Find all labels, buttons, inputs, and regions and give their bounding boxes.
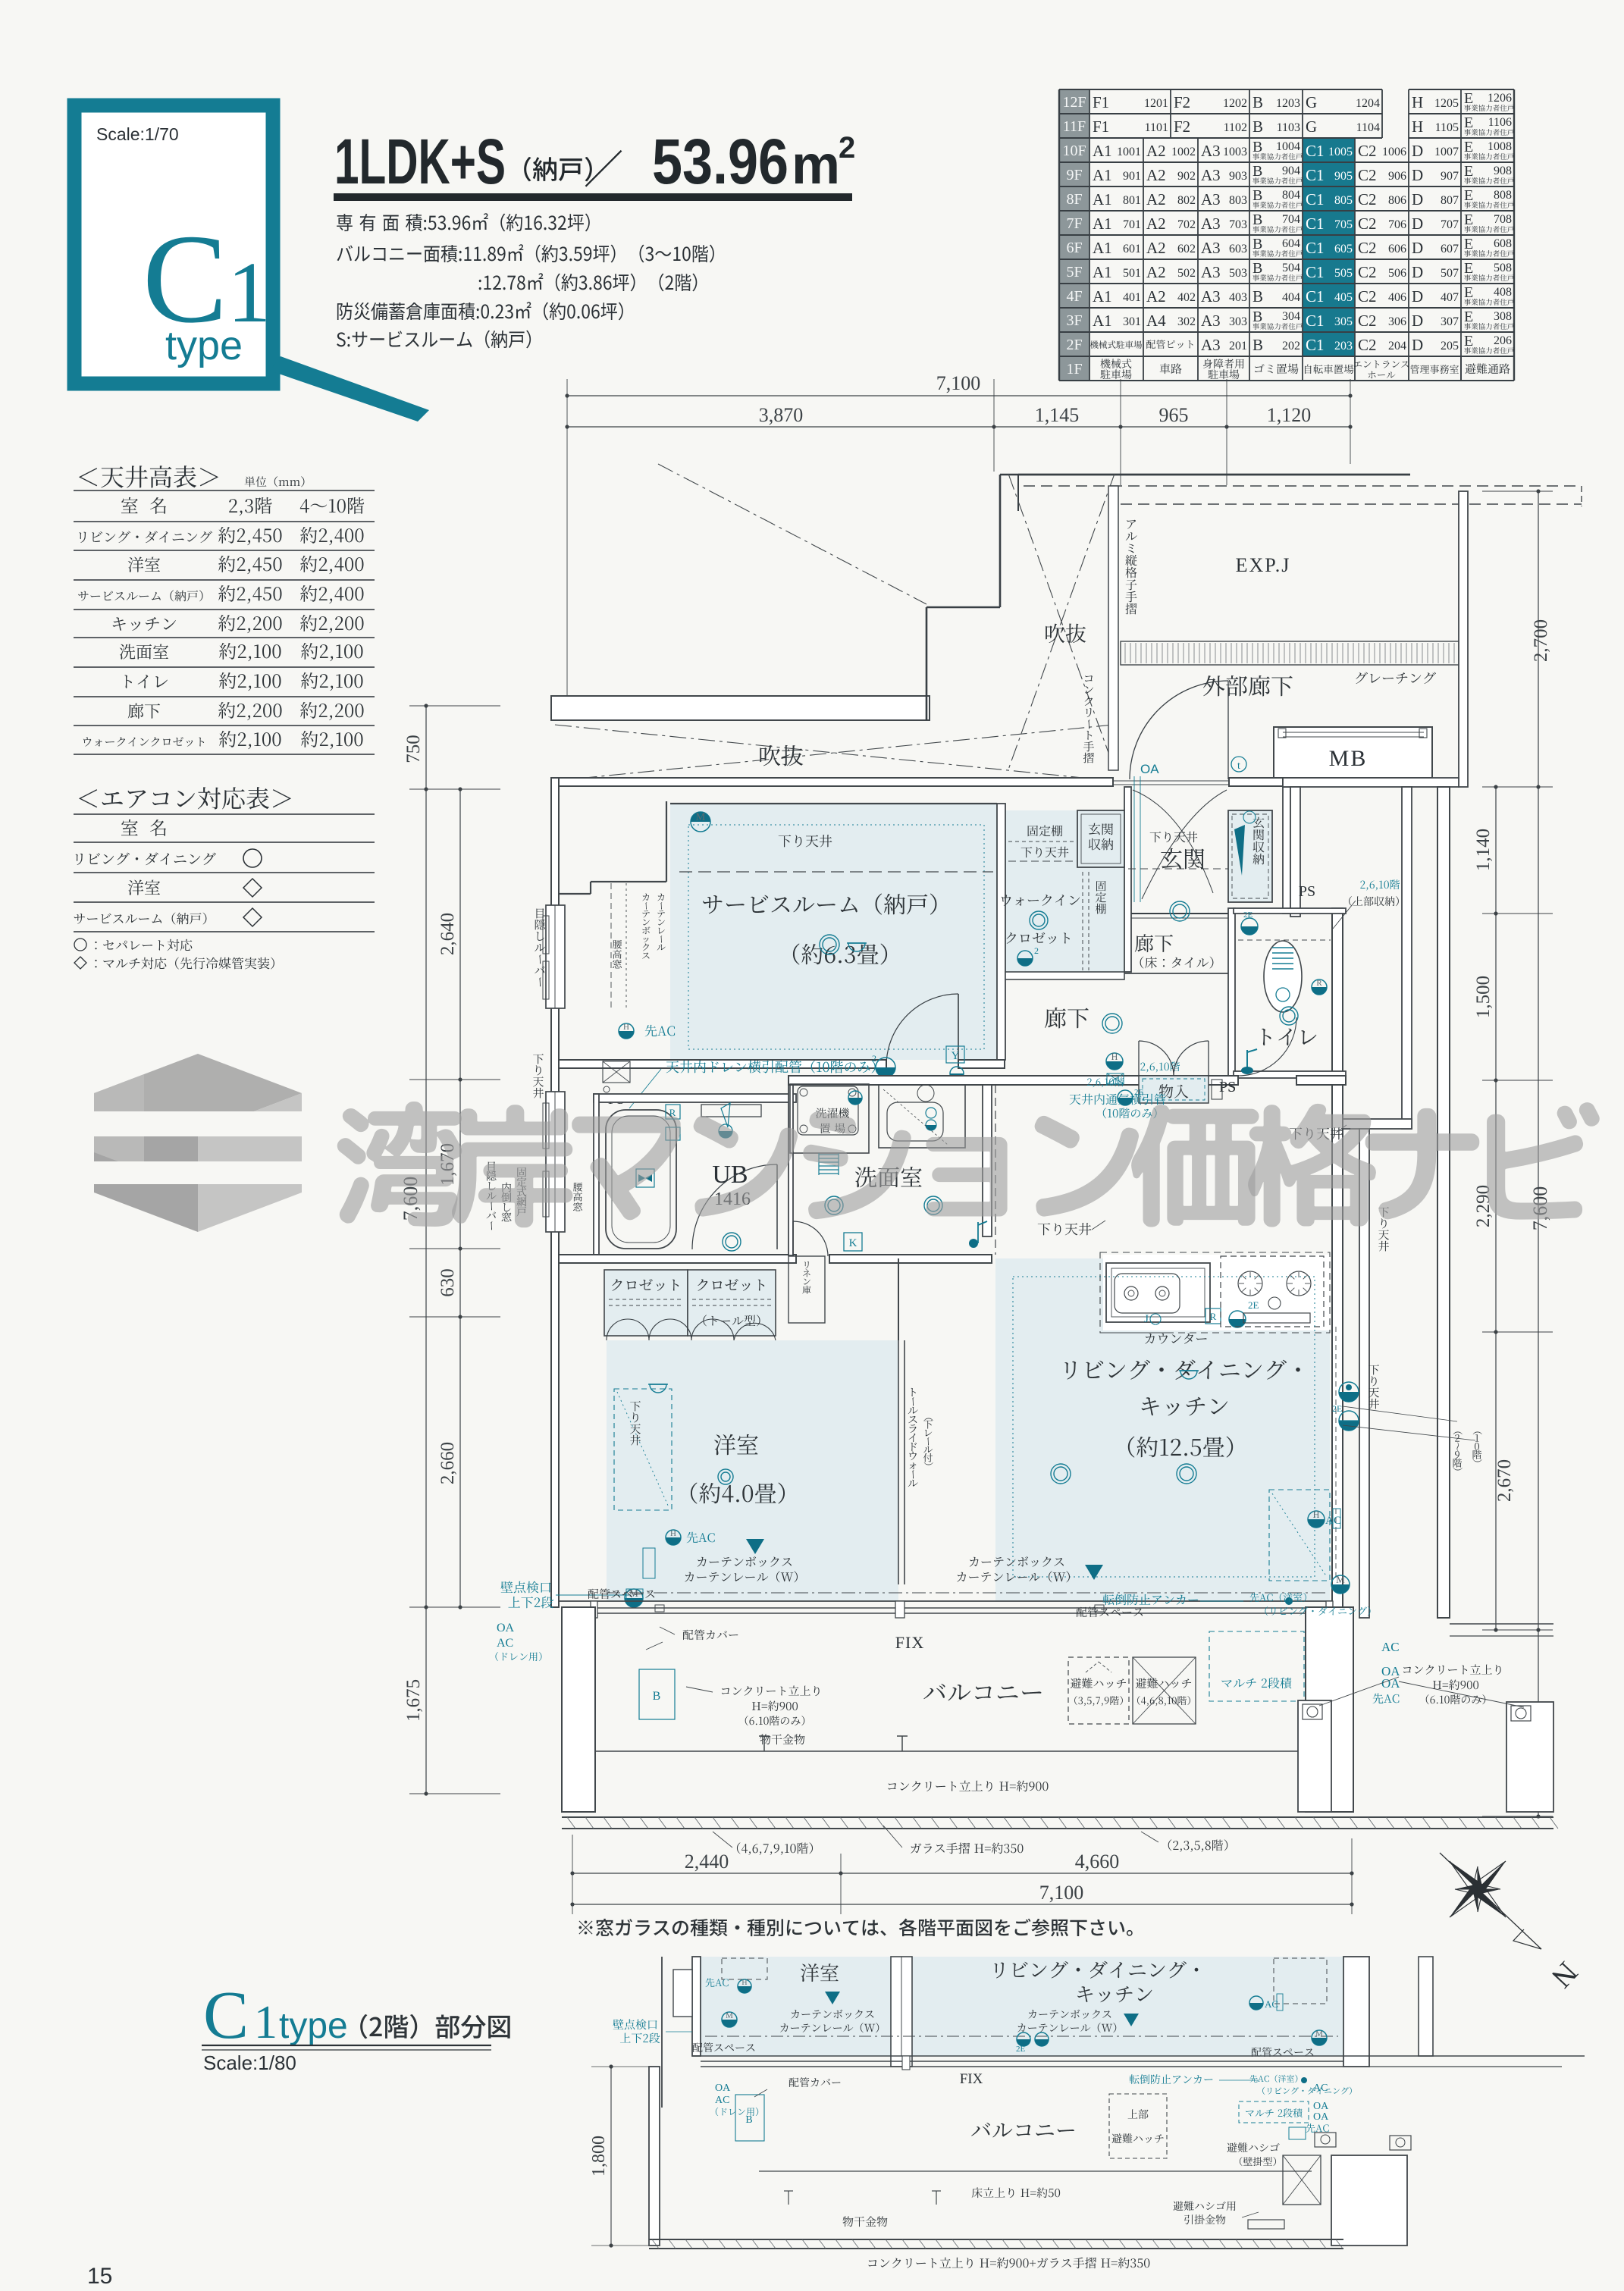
svg-text:H: H <box>1111 1051 1118 1062</box>
svg-text:Scale:1/80: Scale:1/80 <box>203 2051 296 2074</box>
svg-text:965: 965 <box>1159 404 1189 426</box>
svg-text:A1: A1 <box>1093 312 1112 330</box>
svg-text:C1: C1 <box>1306 336 1325 354</box>
svg-text:A1: A1 <box>1093 215 1112 233</box>
svg-text:7,100: 7,100 <box>1039 1882 1084 1904</box>
svg-text:2E: 2E <box>1243 910 1253 920</box>
svg-text:204: 204 <box>1388 340 1406 353</box>
svg-text:H: H <box>1412 118 1423 136</box>
svg-text:F1: F1 <box>1093 118 1109 136</box>
svg-text:2E: 2E <box>1016 2045 1026 2054</box>
svg-text:C1: C1 <box>1306 190 1325 208</box>
svg-text:801: 801 <box>1123 194 1141 207</box>
svg-text:202: 202 <box>1282 340 1300 353</box>
svg-text:2: 2 <box>872 1053 876 1064</box>
svg-text:902: 902 <box>1177 170 1196 183</box>
svg-text:604: 604 <box>1282 237 1300 250</box>
svg-text:PS: PS <box>1219 1079 1236 1095</box>
svg-text:C2: C2 <box>1358 263 1377 281</box>
svg-text:t: t <box>1237 760 1240 772</box>
svg-text:408: 408 <box>1494 286 1512 299</box>
svg-text:D: D <box>1412 287 1423 306</box>
svg-text:305: 305 <box>1334 315 1353 328</box>
svg-text:A1: A1 <box>1093 287 1112 306</box>
svg-text:1102: 1102 <box>1224 121 1247 134</box>
svg-text:7,100: 7,100 <box>936 372 981 394</box>
svg-text:J: J <box>1144 1313 1149 1325</box>
svg-text:C1: C1 <box>1306 312 1325 330</box>
svg-text:907: 907 <box>1441 170 1459 183</box>
svg-text:EXP.J: EXP.J <box>1236 554 1291 576</box>
svg-text:304: 304 <box>1282 310 1300 323</box>
svg-text:D: D <box>1412 336 1423 354</box>
svg-text:C2: C2 <box>1358 190 1377 208</box>
svg-text:4,660: 4,660 <box>1075 1851 1120 1873</box>
svg-text:FIX: FIX <box>960 2071 983 2087</box>
svg-text:3F: 3F <box>1066 312 1082 329</box>
svg-text:2,700: 2,700 <box>1531 619 1551 662</box>
svg-text:10F: 10F <box>1062 143 1086 159</box>
svg-text:C2: C2 <box>1358 142 1377 160</box>
svg-text:303: 303 <box>1229 315 1247 328</box>
svg-text:502: 502 <box>1177 267 1196 280</box>
svg-text:601: 601 <box>1123 243 1141 255</box>
svg-text:UB: UB <box>712 1161 748 1189</box>
svg-text:9F: 9F <box>1066 167 1082 183</box>
svg-text:A3: A3 <box>1201 239 1221 257</box>
svg-text:H: H <box>623 1023 629 1032</box>
svg-text:707: 707 <box>1441 218 1459 231</box>
svg-text:2,440: 2,440 <box>685 1851 729 1873</box>
svg-text:E: E <box>1464 114 1473 131</box>
svg-text:Scale:1/70: Scale:1/70 <box>96 124 179 144</box>
svg-text:C2: C2 <box>1358 215 1377 233</box>
svg-text:E: E <box>1464 212 1473 228</box>
svg-text:1,120: 1,120 <box>1267 404 1312 426</box>
svg-text:506: 506 <box>1388 267 1406 280</box>
svg-text:A3: A3 <box>1201 312 1221 330</box>
svg-text:605: 605 <box>1334 243 1353 255</box>
svg-text:B: B <box>1252 236 1262 252</box>
svg-text:1F: 1F <box>1066 361 1082 378</box>
svg-text:12F: 12F <box>1062 94 1086 111</box>
svg-text:405: 405 <box>1334 291 1353 304</box>
svg-text:M: M <box>696 811 706 823</box>
svg-text:1205: 1205 <box>1434 97 1459 110</box>
svg-text:OA: OA <box>497 1622 515 1634</box>
svg-text:A2: A2 <box>1146 263 1166 281</box>
svg-text:C: C <box>203 1978 249 2053</box>
svg-text:402: 402 <box>1177 291 1196 304</box>
svg-text:1006: 1006 <box>1382 146 1406 158</box>
svg-text:603: 603 <box>1229 243 1247 255</box>
svg-text:C2: C2 <box>1358 336 1377 354</box>
svg-text:M: M <box>1336 1574 1345 1585</box>
svg-text:D: D <box>1412 215 1423 233</box>
svg-text:E: E <box>1464 236 1473 252</box>
svg-text:FIX: FIX <box>895 1633 924 1652</box>
svg-text:type: type <box>279 2006 348 2046</box>
svg-text:1005: 1005 <box>1328 146 1353 158</box>
svg-text:A2: A2 <box>1146 215 1166 233</box>
svg-text:701: 701 <box>1123 218 1141 231</box>
svg-text:901: 901 <box>1123 170 1141 183</box>
svg-text:B: B <box>1252 163 1262 180</box>
svg-text:503: 503 <box>1229 267 1247 280</box>
svg-text:E: E <box>1464 163 1473 180</box>
svg-text:1: 1 <box>254 1997 277 2048</box>
svg-text:B: B <box>1252 93 1263 111</box>
svg-text:OA: OA <box>1140 762 1159 776</box>
svg-text:1LDK+S: 1LDK+S <box>334 126 506 197</box>
svg-text:R: R <box>1210 1311 1217 1322</box>
svg-text:906: 906 <box>1388 170 1406 183</box>
svg-text:D: D <box>1412 142 1423 160</box>
svg-text:804: 804 <box>1282 189 1300 202</box>
svg-text:808: 808 <box>1494 189 1512 202</box>
svg-text:D: D <box>1412 166 1423 184</box>
svg-text:AC: AC <box>1381 1640 1400 1654</box>
svg-text:803: 803 <box>1229 194 1247 207</box>
svg-text:703: 703 <box>1229 218 1247 231</box>
svg-text:306: 306 <box>1388 315 1406 328</box>
svg-text:F1: F1 <box>1093 93 1109 111</box>
svg-text:C2: C2 <box>1358 287 1377 306</box>
svg-text:H: H <box>741 1979 747 1987</box>
svg-text:C1: C1 <box>1306 142 1325 160</box>
svg-text:1203: 1203 <box>1276 97 1300 110</box>
svg-text:A2: A2 <box>1146 142 1166 160</box>
svg-text:1007: 1007 <box>1434 146 1459 158</box>
svg-text:2,640: 2,640 <box>437 913 458 955</box>
svg-text:1201: 1201 <box>1144 97 1168 110</box>
svg-text:B: B <box>1252 139 1262 155</box>
svg-text:M: M <box>726 2011 733 2020</box>
svg-text:708: 708 <box>1494 213 1512 226</box>
svg-text:508: 508 <box>1494 262 1512 274</box>
svg-text:507: 507 <box>1441 267 1459 280</box>
svg-text:R: R <box>1316 979 1322 988</box>
svg-text:1,800: 1,800 <box>589 2136 609 2177</box>
svg-text:OA: OA <box>1313 2101 1329 2112</box>
svg-text:1103: 1103 <box>1277 121 1300 134</box>
svg-text:1,140: 1,140 <box>1473 829 1494 871</box>
svg-text:702: 702 <box>1177 218 1196 231</box>
svg-text:705: 705 <box>1334 218 1353 231</box>
svg-text:1204: 1204 <box>1356 97 1380 110</box>
svg-text:2E: 2E <box>1134 1088 1144 1097</box>
svg-text:504: 504 <box>1282 262 1300 274</box>
svg-text:750: 750 <box>403 735 424 763</box>
svg-text:406: 406 <box>1388 291 1406 304</box>
svg-text:630: 630 <box>437 1268 458 1297</box>
svg-text:H: H <box>1313 1509 1320 1520</box>
svg-text:C2: C2 <box>1358 312 1377 330</box>
svg-text:5F: 5F <box>1066 264 1082 280</box>
svg-text:C2: C2 <box>1358 239 1377 257</box>
svg-text:2F: 2F <box>1066 337 1082 353</box>
svg-text:407: 407 <box>1441 291 1459 304</box>
svg-text:805: 805 <box>1334 194 1353 207</box>
svg-text:1202: 1202 <box>1223 97 1247 110</box>
svg-text:D: D <box>1412 312 1423 330</box>
svg-text:308: 308 <box>1494 310 1512 323</box>
svg-text:C1: C1 <box>1306 166 1325 184</box>
svg-text:203: 203 <box>1334 340 1353 353</box>
svg-text:1206: 1206 <box>1488 92 1512 105</box>
svg-text:Y: Y <box>952 1050 960 1062</box>
svg-text:C1: C1 <box>1306 287 1325 306</box>
svg-text:B: B <box>1252 336 1263 354</box>
svg-text:903: 903 <box>1229 170 1247 183</box>
svg-text:201: 201 <box>1229 340 1247 353</box>
svg-text:2,670: 2,670 <box>1494 1459 1515 1502</box>
svg-text:m: m <box>792 135 840 196</box>
svg-text:806: 806 <box>1388 194 1406 207</box>
svg-text:1,145: 1,145 <box>1035 404 1080 426</box>
svg-text:H: H <box>1412 93 1423 111</box>
svg-text:302: 302 <box>1177 315 1196 328</box>
svg-text:E: E <box>1464 260 1473 277</box>
svg-text:706: 706 <box>1388 218 1406 231</box>
svg-text:404: 404 <box>1282 291 1300 304</box>
svg-text:501: 501 <box>1123 267 1141 280</box>
svg-text:1004: 1004 <box>1276 140 1300 153</box>
svg-text:B: B <box>745 2114 752 2126</box>
svg-text:C1: C1 <box>1306 239 1325 257</box>
svg-text:2E: 2E <box>1332 1403 1342 1414</box>
svg-text:E: E <box>1464 284 1473 301</box>
svg-text:11F: 11F <box>1063 118 1086 135</box>
svg-text:608: 608 <box>1494 237 1512 250</box>
svg-text:206: 206 <box>1494 334 1512 347</box>
svg-text:E: E <box>1464 90 1473 107</box>
svg-text:15: 15 <box>87 2264 112 2289</box>
svg-text:1101: 1101 <box>1145 121 1168 134</box>
svg-text:6F: 6F <box>1066 240 1082 256</box>
svg-text:D: D <box>1412 239 1423 257</box>
svg-text:7F: 7F <box>1066 215 1082 232</box>
svg-text:A1: A1 <box>1093 190 1112 208</box>
svg-text:505: 505 <box>1334 267 1353 280</box>
svg-text:AC: AC <box>715 2095 729 2106</box>
svg-text:2: 2 <box>839 131 855 165</box>
svg-text:OA: OA <box>1313 2111 1329 2123</box>
svg-text:type: type <box>165 323 243 368</box>
svg-text:C2: C2 <box>1358 166 1377 184</box>
svg-text:A1: A1 <box>1093 166 1112 184</box>
svg-text:2: 2 <box>1034 945 1039 956</box>
svg-text:G: G <box>1306 118 1317 136</box>
svg-text:AC: AC <box>1313 2083 1328 2094</box>
svg-text:606: 606 <box>1388 243 1406 255</box>
svg-text:A2: A2 <box>1146 190 1166 208</box>
svg-text:301: 301 <box>1123 315 1141 328</box>
svg-text:E: E <box>1464 333 1473 349</box>
svg-text:905: 905 <box>1334 170 1353 183</box>
svg-text:2,660: 2,660 <box>437 1442 458 1484</box>
svg-text:C1: C1 <box>1306 215 1325 233</box>
svg-text:G: G <box>1306 93 1317 111</box>
svg-text:AC: AC <box>497 1637 513 1650</box>
svg-text:AC: AC <box>1265 1998 1278 2010</box>
svg-text:4F: 4F <box>1066 288 1082 305</box>
svg-text:E: E <box>1464 187 1473 204</box>
svg-text:E: E <box>1464 309 1473 325</box>
svg-text:807: 807 <box>1441 194 1459 207</box>
svg-text:307: 307 <box>1441 315 1459 328</box>
svg-text:602: 602 <box>1177 243 1196 255</box>
svg-text:1008: 1008 <box>1488 140 1512 153</box>
svg-text:1104: 1104 <box>1356 121 1380 134</box>
svg-text:K: K <box>849 1237 857 1249</box>
svg-text:904: 904 <box>1282 165 1300 177</box>
svg-text:1003: 1003 <box>1223 146 1247 158</box>
svg-text:908: 908 <box>1494 165 1512 177</box>
svg-text:A2: A2 <box>1146 287 1166 306</box>
svg-text:M: M <box>1315 2029 1323 2039</box>
svg-text:D: D <box>1412 263 1423 281</box>
svg-text:PS: PS <box>1299 883 1315 900</box>
svg-text:B: B <box>1252 309 1262 325</box>
svg-text:607: 607 <box>1441 243 1459 255</box>
svg-text:B: B <box>1252 260 1262 277</box>
svg-text:802: 802 <box>1177 194 1196 207</box>
svg-text:F2: F2 <box>1174 93 1190 111</box>
svg-text:A1: A1 <box>1093 142 1112 160</box>
svg-text:B: B <box>653 1690 661 1703</box>
svg-text:8F: 8F <box>1066 191 1082 208</box>
svg-text:A3: A3 <box>1201 215 1221 233</box>
svg-text:A3: A3 <box>1201 263 1221 281</box>
svg-text:B: B <box>1252 287 1263 306</box>
svg-text:D: D <box>1412 190 1423 208</box>
svg-text:1106: 1106 <box>1488 116 1512 129</box>
svg-text:A3: A3 <box>1201 190 1221 208</box>
svg-text:A4: A4 <box>1146 312 1166 330</box>
svg-text:53.96: 53.96 <box>652 126 788 197</box>
svg-text:1002: 1002 <box>1171 146 1196 158</box>
svg-text:OA: OA <box>715 2083 731 2094</box>
svg-text:H: H <box>670 1529 676 1538</box>
svg-text:A1: A1 <box>1093 263 1112 281</box>
svg-text:E: E <box>1464 139 1473 155</box>
svg-text:205: 205 <box>1441 340 1459 353</box>
svg-text:3,870: 3,870 <box>759 404 804 426</box>
svg-text:F2: F2 <box>1174 118 1190 136</box>
svg-text:704: 704 <box>1282 213 1300 226</box>
svg-text:B: B <box>1252 212 1262 228</box>
svg-text:B: B <box>1252 118 1263 136</box>
svg-text:1001: 1001 <box>1117 146 1141 158</box>
svg-text:A3: A3 <box>1201 287 1221 306</box>
svg-text:1,675: 1,675 <box>403 1679 424 1722</box>
svg-text:A3: A3 <box>1201 142 1221 160</box>
svg-text:A2: A2 <box>1146 166 1166 184</box>
svg-text:MB: MB <box>1329 746 1368 771</box>
svg-text:C1: C1 <box>1306 263 1325 281</box>
svg-text:A2: A2 <box>1146 239 1166 257</box>
svg-text:401: 401 <box>1123 291 1141 304</box>
svg-text:A3: A3 <box>1201 336 1221 354</box>
svg-text:A1: A1 <box>1093 239 1112 257</box>
svg-text:OA: OA <box>1381 1676 1400 1691</box>
svg-text:2E: 2E <box>1248 1299 1259 1311</box>
svg-text:1,500: 1,500 <box>1473 976 1494 1018</box>
svg-text:403: 403 <box>1229 291 1247 304</box>
svg-text:1105: 1105 <box>1435 121 1459 134</box>
svg-text:B: B <box>1252 187 1262 204</box>
svg-text:A3: A3 <box>1201 166 1221 184</box>
